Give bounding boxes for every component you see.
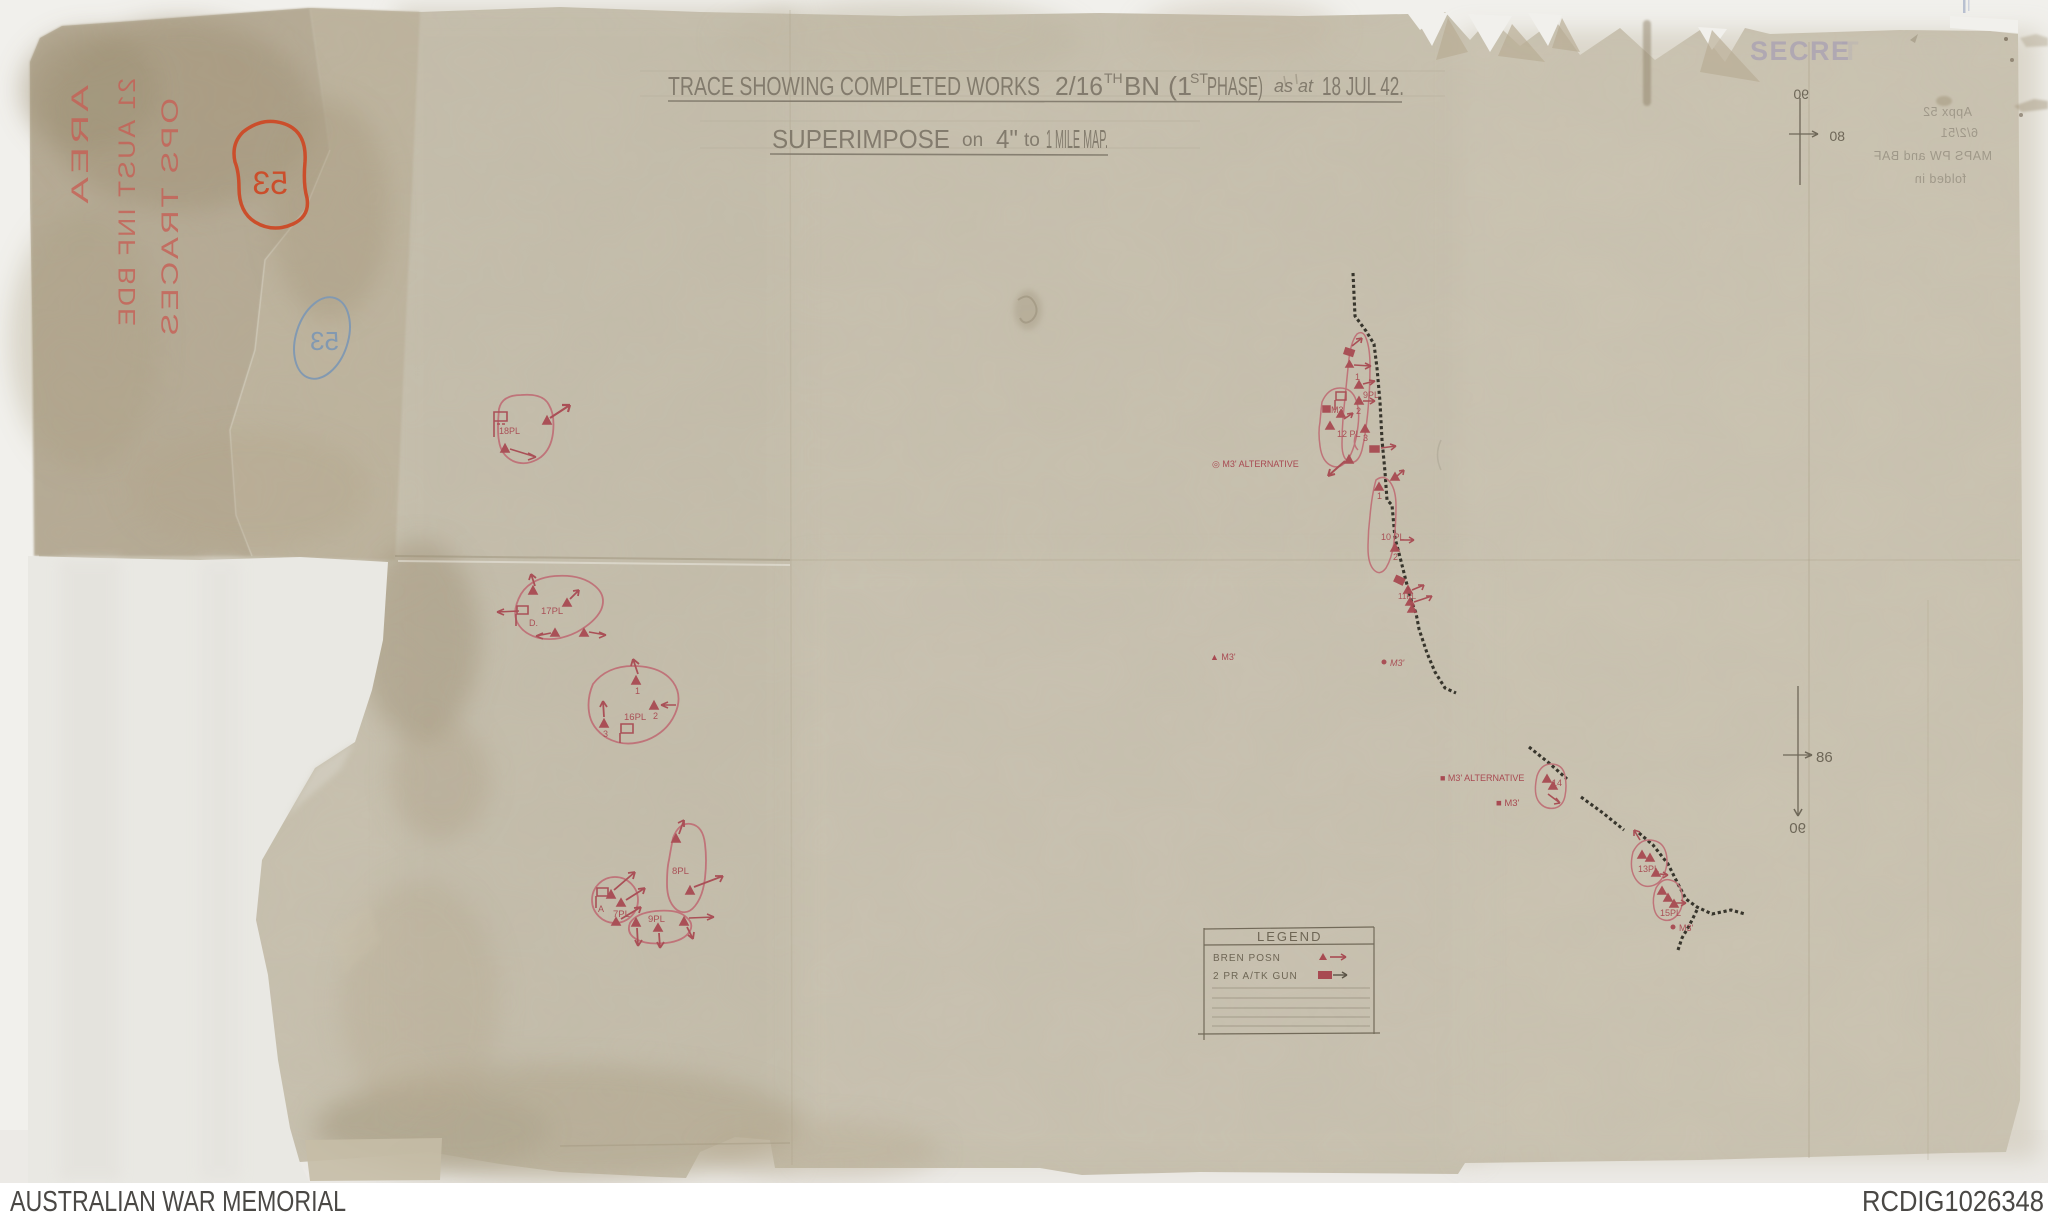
svg-text:BN: BN [1124,71,1160,101]
svg-text:2: 2 [1393,552,1398,562]
svg-text:53: 53 [252,165,288,201]
svg-text:folded in: folded in [1914,172,1966,186]
svg-text:SUPERIMPOSE: SUPERIMPOSE [772,124,950,154]
svg-text:BREN POSN: BREN POSN [1213,953,1281,964]
svg-text:D.: D. [529,618,538,628]
svg-text:16PL: 16PL [624,712,646,723]
svg-text:to: to [1024,130,1040,151]
svg-text:6/2/51: 6/2/51 [1940,126,1978,140]
svg-text:18PL: 18PL [499,426,520,436]
svg-text:M3': M3' [1390,658,1405,668]
svg-text:3: 3 [1363,433,1368,443]
svg-text:4": 4" [996,124,1018,154]
svg-text:86: 86 [1816,749,1833,766]
svg-text:8PL: 8PL [672,866,689,877]
svg-text:as at: as at [1274,76,1314,96]
svg-text:1: 1 [1355,372,1360,382]
svg-text:53: 53 [310,326,339,356]
svg-text:MAPS PW and BAF: MAPS PW and BAF [1873,149,1992,163]
svg-text:90: 90 [1789,820,1806,837]
svg-text:on: on [962,130,983,151]
svg-text:11PL: 11PL [1398,592,1417,601]
svg-text:17PL: 17PL [541,606,563,617]
svg-text:21 AUST INF BDE: 21 AUST INF BDE [114,78,141,328]
svg-text:M3': M3' [1679,923,1694,933]
svg-text:AREA: AREA [67,85,94,207]
svg-text:80: 80 [1829,128,1845,144]
svg-text:2/16: 2/16 [1055,71,1103,101]
svg-text:◎ M3' ALTERNATIVE: ◎ M3' ALTERNATIVE [1212,459,1299,469]
svg-text:9PL: 9PL [648,914,665,925]
svg-text:TRACE SHOWING COMPLETED WORKS: TRACE SHOWING COMPLETED WORKS [668,71,1040,101]
svg-text:14: 14 [1552,778,1562,788]
svg-text:A: A [598,904,604,914]
svg-text:ST: ST [1190,70,1208,86]
svg-text:1: 1 [635,686,640,696]
svg-text:AUSTRALIAN WAR MEMORIAL: AUSTRALIAN WAR MEMORIAL [10,1186,346,1218]
svg-text:2: 2 [1356,406,1361,416]
svg-text:SECRE: SECRE [1750,36,1851,66]
svg-text:TH: TH [1104,70,1123,86]
svg-text:PHASE): PHASE) [1207,71,1263,101]
svg-text:RCDIG1026348: RCDIG1026348 [1862,1186,2044,1218]
svg-text:■ M3' ALTERNATIVE: ■ M3' ALTERNATIVE [1440,773,1524,783]
svg-text:12 PL: 12 PL [1337,429,1361,439]
svg-text:90: 90 [1793,86,1809,102]
svg-text:18 JUL 42.: 18 JUL 42. [1322,71,1404,101]
svg-text:(1: (1 [1168,71,1192,101]
svg-text:Appx 52: Appx 52 [1923,105,1972,119]
svg-text:2 PR A/TK GUN: 2 PR A/TK GUN [1213,971,1298,982]
svg-text:LEGEND: LEGEND [1257,929,1322,944]
svg-text:2: 2 [653,711,658,721]
svg-text:▲ M3': ▲ M3' [1210,652,1236,662]
svg-text:3: 3 [603,729,608,739]
svg-text:■ M3': ■ M3' [1496,798,1520,809]
svg-text:OPS TRACES: OPS TRACES [157,98,184,338]
svg-text:T: T [1842,36,1860,66]
svg-text:15PL: 15PL [1660,908,1681,918]
svg-text:1 MILE MAP.: 1 MILE MAP. [1046,124,1108,154]
svg-text:1: 1 [1377,491,1382,501]
